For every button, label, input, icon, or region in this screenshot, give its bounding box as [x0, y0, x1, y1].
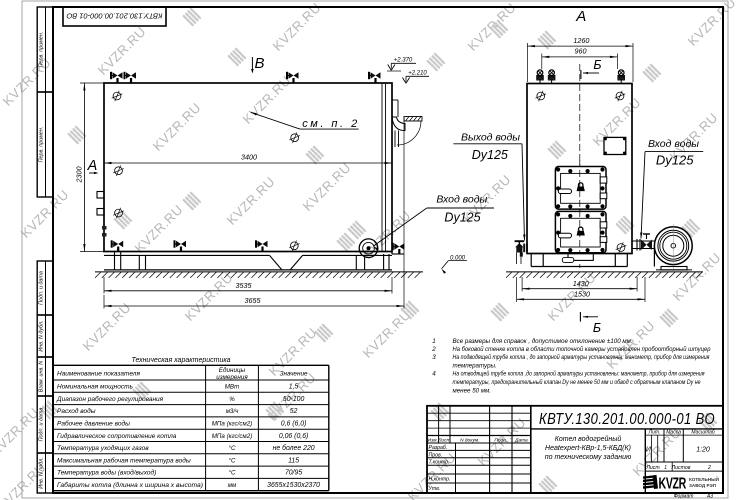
svg-text:МПа (кгс/см2): МПа (кгс/см2): [212, 421, 252, 428]
svg-text:N докум.: N докум.: [460, 437, 479, 443]
svg-text:960: 960: [575, 47, 587, 56]
svg-text:КВТУ.130.201.00.000-01 ВО: КВТУ.130.201.00.000-01 ВО: [539, 411, 715, 428]
svg-text:м3/ч: м3/ч: [226, 408, 239, 415]
svg-text:Дата: Дата: [514, 437, 528, 443]
svg-text:°С: °С: [229, 470, 236, 477]
svg-text:0,6 (6,0): 0,6 (6,0): [281, 421, 307, 428]
svg-text:На подводящей трубе котла , д: На подводящей трубе котла , до запорной …: [453, 354, 711, 361]
svg-text:Dy125: Dy125: [656, 152, 694, 167]
svg-text:1:20: 1:20: [696, 447, 710, 454]
svg-text:измерения: измерения: [216, 374, 248, 381]
svg-text:Масса: Масса: [666, 430, 681, 436]
svg-text:Лист: Лист: [437, 437, 450, 443]
svg-text:3535: 3535: [236, 281, 253, 290]
svg-text:Гидравлическое сопротивление к: Гидравлическое сопротивление котла: [57, 432, 177, 440]
svg-text:Б: Б: [593, 58, 601, 72]
svg-text:Лист: Лист: [645, 465, 660, 471]
svg-text:70/95: 70/95: [285, 470, 302, 477]
svg-text:Температура воды (вход/выход): Температура воды (вход/выход): [57, 469, 156, 477]
svg-text:°С: °С: [229, 457, 236, 464]
svg-text:Значение: Значение: [280, 371, 308, 378]
svg-text:Б: Б: [593, 321, 601, 335]
svg-text:Н.контр.: Н.контр.: [429, 477, 451, 483]
svg-text:Выход воды: Выход воды: [461, 132, 520, 144]
svg-text:1: 1: [664, 465, 667, 471]
svg-text:2300: 2300: [75, 167, 84, 184]
svg-text:4: 4: [432, 371, 436, 378]
svg-text:менее 50 мм.: менее 50 мм.: [453, 388, 492, 395]
svg-text:Перв. примен.: Перв. примен.: [39, 32, 45, 68]
svg-text:+2.210: +2.210: [408, 71, 427, 77]
svg-text:1530: 1530: [574, 290, 590, 299]
svg-text:по техническому заданию: по техническому заданию: [545, 453, 632, 461]
svg-text:Dy125: Dy125: [444, 211, 480, 225]
svg-text:Расход воды: Расход воды: [57, 407, 96, 415]
svg-text:В: В: [254, 55, 264, 72]
svg-text:Диапазон рабочего регулировани: Диапазон рабочего регулирования: [56, 395, 164, 403]
svg-text:Рабочее давление воды: Рабочее давление воды: [57, 420, 130, 428]
svg-text:0,06 (0,6): 0,06 (0,6): [279, 433, 309, 440]
svg-text:МПа (кгс/см2): МПа (кгс/см2): [212, 433, 252, 440]
svg-text:%: %: [229, 396, 235, 403]
svg-text:Лит.: Лит.: [648, 430, 661, 436]
svg-text:3655х1530х2370: 3655х1530х2370: [267, 482, 320, 489]
svg-text:115: 115: [288, 457, 299, 464]
svg-text:На отводящей трубе котла ,до з: На отводящей трубе котла ,до запорной ар…: [453, 371, 706, 378]
svg-text:3: 3: [432, 354, 436, 361]
svg-text:Температура уходящих газов: Температура уходящих газов: [57, 444, 149, 452]
svg-text:Пров.: Пров.: [429, 452, 443, 458]
svg-text:Габариты котла (длинна х ширин: Габариты котла (длинна х ширина х высота…: [57, 481, 203, 489]
svg-text:Листов: Листов: [671, 465, 691, 471]
svg-text:Все размеры для справок , допу: Все размеры для справок , допустимое отк…: [453, 338, 633, 345]
svg-text:1260: 1260: [573, 36, 589, 45]
svg-text:Утв.: Утв.: [429, 486, 441, 492]
svg-text:КОТЕЛЬНЫЙ: КОТЕЛЬНЫЙ: [689, 475, 719, 482]
svg-text:температуры, предохранительный: температуры, предохранительный клапан Dу…: [453, 379, 701, 386]
svg-text:KVZR: KVZR: [659, 475, 687, 492]
svg-text:не более 220: не более 220: [273, 444, 315, 452]
svg-text:Подп.: Подп.: [494, 437, 507, 443]
svg-text:Номинальная мощность: Номинальная мощность: [57, 384, 134, 391]
svg-text:1,5: 1,5: [289, 384, 299, 391]
svg-text:2: 2: [707, 465, 711, 471]
svg-text:Единицы: Единицы: [219, 366, 246, 374]
svg-text:Вход воды: Вход воды: [648, 138, 699, 150]
svg-text:Инв. N дубл.: Инв. N дубл.: [39, 320, 45, 351]
svg-text:Перв. примен.: Перв. примен.: [39, 127, 45, 163]
svg-text:+2.370: +2.370: [394, 58, 413, 64]
svg-text:Т.контр.: Т.контр.: [429, 460, 450, 466]
svg-text:3655: 3655: [245, 296, 262, 305]
svg-text:КВТУ.130.201.00.000-01 ВО: КВТУ.130.201.00.000-01 ВО: [66, 12, 162, 21]
svg-text:Разраб.: Разраб.: [429, 445, 448, 451]
svg-text:Подп. и дата: Подп. и дата: [39, 408, 45, 442]
svg-text:А: А: [575, 8, 586, 25]
svg-text:2: 2: [431, 346, 436, 353]
svg-text:Техническая характеристика: Техническая характеристика: [131, 357, 230, 364]
svg-text:50-100: 50-100: [283, 396, 305, 403]
svg-text:А3: А3: [706, 494, 713, 500]
svg-text:На боковой стенке котла в обла: На боковой стенке котла в области топочн…: [453, 346, 712, 353]
svg-text:см. п. 2: см. п. 2: [302, 118, 359, 130]
svg-text:1430: 1430: [573, 279, 589, 288]
svg-text:Максимальная рабочая температу: Максимальная рабочая температура воды: [57, 456, 191, 464]
svg-text:52: 52: [290, 408, 298, 415]
svg-text:Изм.: Изм.: [428, 437, 438, 443]
svg-text:температуры.: температуры.: [453, 363, 497, 370]
svg-text:МВт: МВт: [225, 384, 239, 391]
svg-text:Подп. и дата: Подп. и дата: [39, 271, 45, 305]
svg-text:Наименование показателя: Наименование показателя: [57, 371, 140, 378]
svg-text:Взам. инв. N: Взам. инв. N: [39, 361, 45, 393]
svg-text:Формат: Формат: [674, 494, 694, 500]
svg-text:Heatexpert-КВр-1,5-КБД(К): Heatexpert-КВр-1,5-КБД(К): [545, 445, 631, 452]
svg-text:Dy125: Dy125: [472, 148, 508, 162]
svg-text:3400: 3400: [241, 152, 257, 161]
svg-text:1: 1: [432, 338, 435, 345]
svg-text:Масштаб: Масштаб: [691, 430, 715, 436]
svg-text:°С: °С: [229, 445, 236, 452]
svg-text:ЗАВОД РЭП: ЗАВОД РЭП: [689, 483, 716, 488]
svg-text:Инв. N подл.: Инв. N подл.: [39, 457, 45, 489]
svg-text:мм: мм: [228, 482, 237, 489]
svg-text:Котел водогрейный: Котел водогрейный: [555, 435, 622, 443]
svg-text:А: А: [87, 158, 98, 174]
svg-text:Вход воды: Вход воды: [436, 194, 487, 206]
